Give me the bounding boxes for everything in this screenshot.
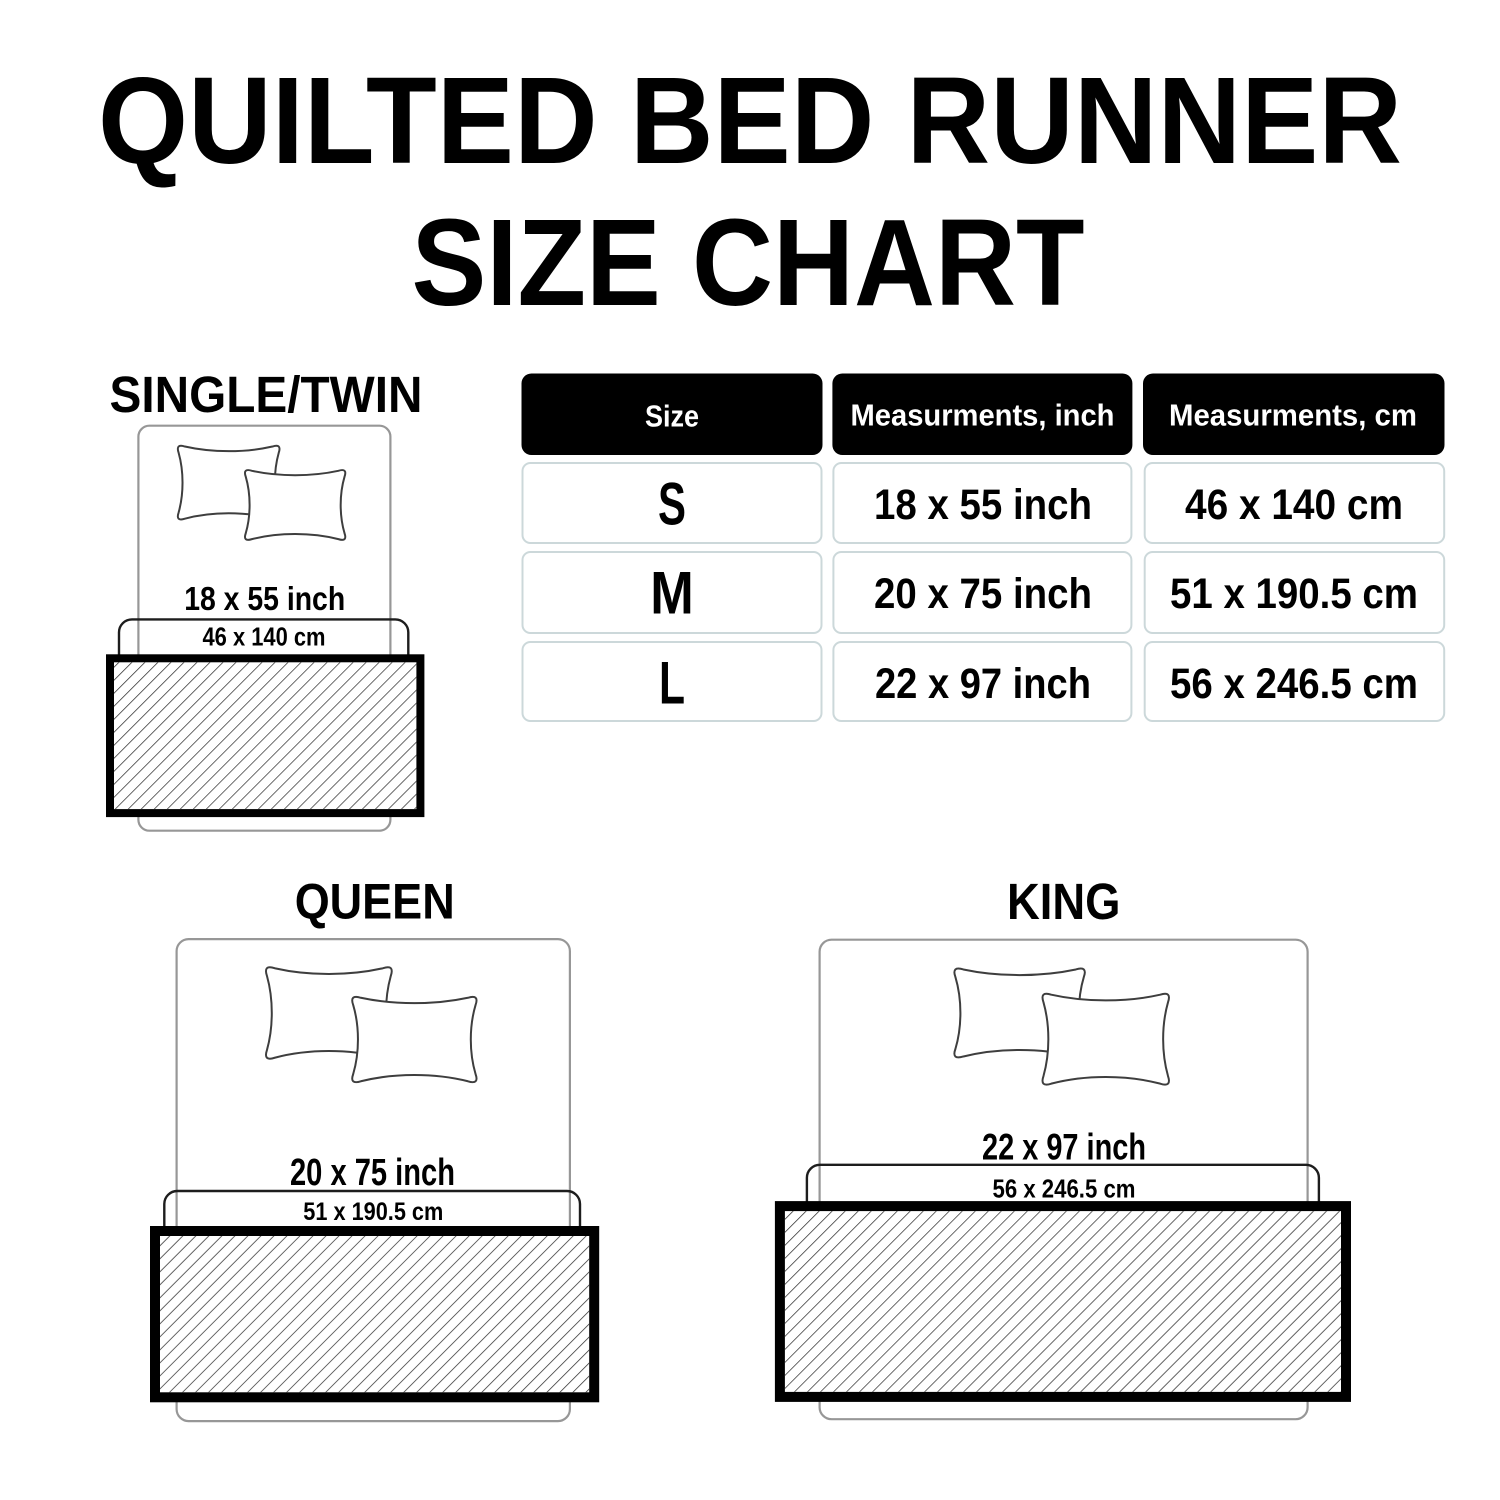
svg-text:SINGLE/TWIN: SINGLE/TWIN bbox=[110, 366, 423, 423]
svg-text:Size: Size bbox=[645, 399, 699, 434]
svg-text:L: L bbox=[659, 650, 685, 717]
svg-text:20 x 75 inch: 20 x 75 inch bbox=[874, 570, 1092, 618]
svg-text:M: M bbox=[650, 560, 694, 627]
svg-text:46 x 140 cm: 46 x 140 cm bbox=[1185, 481, 1403, 529]
svg-text:Measurments, cm: Measurments, cm bbox=[1169, 398, 1417, 433]
svg-text:18 x 55 inch: 18 x 55 inch bbox=[184, 580, 345, 617]
svg-text:S: S bbox=[658, 471, 686, 538]
svg-text:SIZE CHART: SIZE CHART bbox=[412, 195, 1085, 332]
svg-text:51 x 190.5 cm: 51 x 190.5 cm bbox=[303, 1198, 443, 1226]
svg-text:51 x 190.5 cm: 51 x 190.5 cm bbox=[1170, 570, 1418, 618]
svg-text:46 x 140 cm: 46 x 140 cm bbox=[203, 621, 326, 651]
svg-text:56 x 246.5 cm: 56 x 246.5 cm bbox=[1170, 660, 1418, 708]
svg-text:QUILTED BED RUNNER: QUILTED BED RUNNER bbox=[98, 53, 1402, 190]
svg-text:22 x 97 inch: 22 x 97 inch bbox=[875, 660, 1091, 708]
svg-text:56 x 246.5 cm: 56 x 246.5 cm bbox=[993, 1173, 1136, 1203]
svg-text:22 x 97 inch: 22 x 97 inch bbox=[982, 1127, 1146, 1168]
svg-text:QUEEN: QUEEN bbox=[295, 874, 455, 930]
svg-text:20 x 75 inch: 20 x 75 inch bbox=[290, 1152, 455, 1194]
svg-text:18 x 55 inch: 18 x 55 inch bbox=[874, 481, 1092, 529]
svg-text:KING: KING bbox=[1007, 873, 1121, 930]
svg-text:Measurments, inch: Measurments, inch bbox=[851, 398, 1115, 433]
